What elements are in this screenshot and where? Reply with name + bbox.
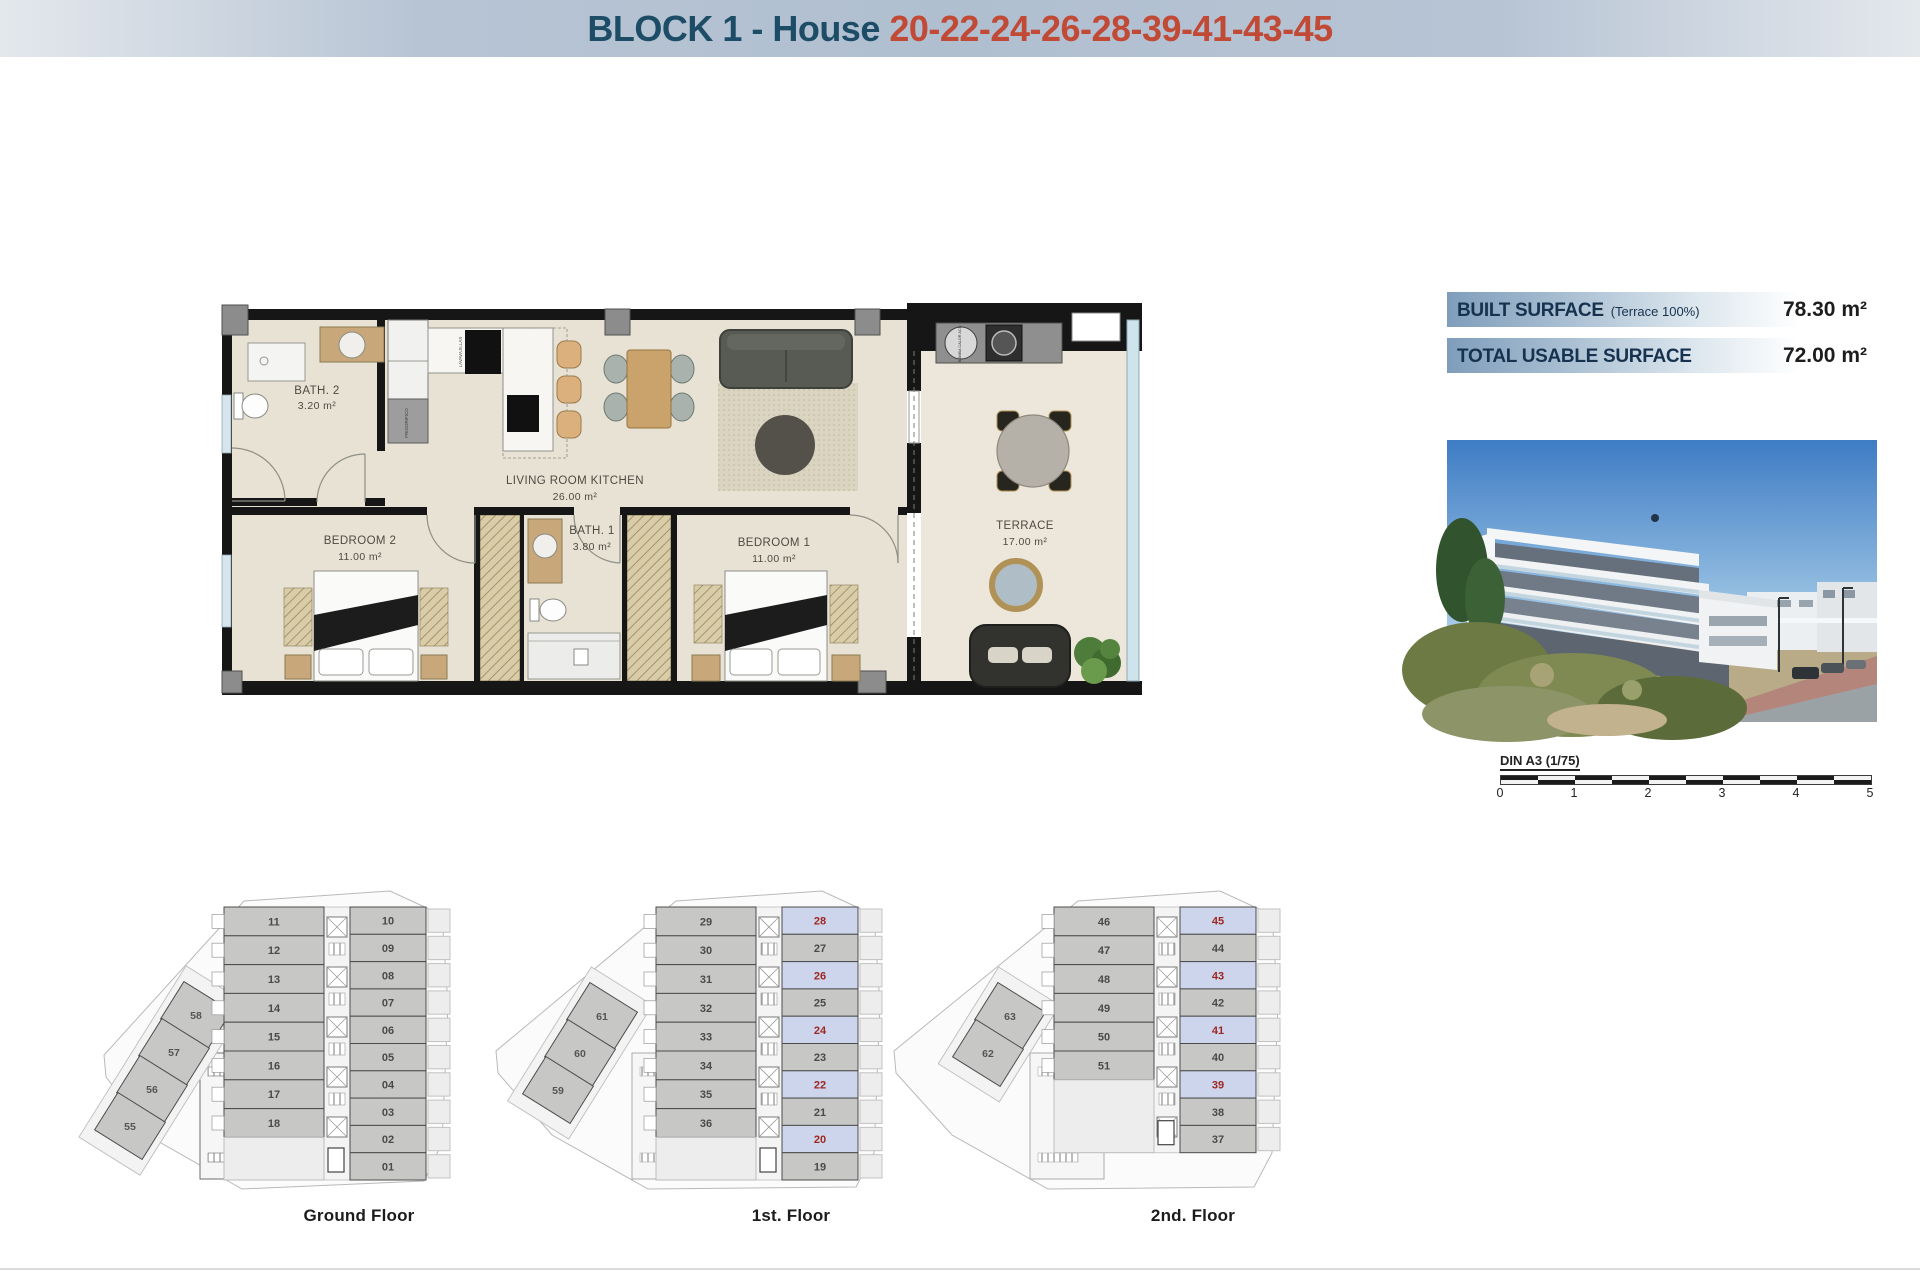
room-area-bath2: 3.20 m² [298,400,336,412]
unit-number: 35 [700,1089,712,1101]
stair-flight [761,993,777,1005]
balcony [428,991,450,1014]
unit-number: 46 [1098,916,1110,928]
entrance-lift [328,1148,344,1172]
unit-number: 62 [982,1048,994,1060]
apartment-floor-plan: FRIGORIFICO LAVAVAJILLAS [222,303,1142,703]
unit-entry [644,1001,656,1015]
stair-flight [329,1093,345,1105]
scale-bar-graphic [1500,775,1872,785]
unit-entry [212,1030,224,1044]
ground-floor-label: Ground Floor [304,1206,415,1226]
unit-number: 24 [814,1025,827,1037]
bar-stools [557,341,581,438]
unit-number: 22 [814,1079,826,1091]
unit-number: 23 [814,1052,826,1064]
unit-number: 15 [268,1032,280,1044]
scale-segment [1612,780,1649,784]
stair-flight [761,1043,777,1055]
balcony [428,1155,450,1178]
terrace-dining [997,411,1071,491]
unit-entry [644,1058,656,1072]
unit-number: 04 [382,1079,395,1091]
room-label-bath2: BATH. 2 [294,385,339,397]
title-house-numbers: 20-22-24-26-28-39-41-43-45 [889,8,1332,49]
title-bar: BLOCK 1 - House 20-22-24-26-28-39-41-43-… [0,0,1920,57]
unit-entry [1042,1058,1054,1072]
dishwasher-label: LAVAVAJILLAS [458,337,463,368]
terrace-round-rug [992,561,1040,609]
unit-number: 45 [1212,916,1224,928]
balcony [428,1127,450,1150]
balcony [1258,909,1280,932]
unit-number: 14 [268,1003,281,1015]
balcony [1258,1127,1280,1150]
unit-entry [212,914,224,928]
second-floor-keyplan: 6362464748495051454443424140393837 [848,885,1298,1205]
unit-entry [212,1087,224,1101]
scale-bar-title: DIN A3 (1/75) [1500,753,1580,771]
unit-entry [212,1058,224,1072]
scale-segment [1834,780,1871,784]
unit-number: 50 [1098,1032,1110,1044]
lobby [1054,1080,1154,1153]
unit-number: 20 [814,1134,826,1146]
unit-number: 34 [700,1060,713,1072]
built-surface-value: 78.30 m² [1783,298,1867,322]
unit-number: 60 [574,1048,586,1060]
stair-flight [1159,993,1175,1005]
unit-number: 12 [268,945,280,957]
unit-number: 26 [814,970,826,982]
built-surface-bar: BUILT SURFACE (Terrace 100%) 78.30 m² [1447,292,1877,327]
room-label-bedroom1: BEDROOM 1 [738,537,811,549]
unit-entry [1042,943,1054,957]
balcony [428,1073,450,1096]
unit-number: 16 [268,1060,280,1072]
unit-number: 43 [1212,970,1224,982]
unit-entry [1042,1001,1054,1015]
terrace-glass-railing [1127,320,1139,681]
entrance-lift [760,1148,776,1172]
scale-bar-ticks: 012345 [1500,786,1872,802]
unit-entry [644,1087,656,1101]
unit-number: 03 [382,1107,394,1119]
stair-flight [329,943,345,955]
balcony [1258,991,1280,1014]
usable-surface-label: TOTAL USABLE SURFACE [1457,346,1692,368]
unit-number: 58 [190,1010,202,1022]
brochure-page: BLOCK 1 - House 20-22-24-26-28-39-41-43-… [0,0,1920,1280]
room-label-living: LIVING ROOM KITCHEN [506,475,644,487]
stair-flight [329,1043,345,1055]
balcony [1258,1046,1280,1069]
unit-entry [1042,914,1054,928]
terrace-loveseat [970,625,1070,687]
core-detail [1038,1153,1078,1162]
unit-number: 05 [382,1052,394,1064]
ground-floor-keyplan: 5857565511121314151617181009080706050403… [92,885,542,1205]
unit-number: 29 [700,916,712,928]
unit-number: 17 [268,1089,280,1101]
scale-bar: DIN A3 (1/75) 012345 [1500,752,1872,802]
room-label-bedroom2: BEDROOM 2 [324,535,397,547]
scale-segment [1723,776,1760,780]
scale-tick: 2 [1645,786,1652,800]
unit-number: 13 [268,974,280,986]
unit-entry [644,943,656,957]
unit-entry [1042,972,1054,986]
usable-surface-bar: TOTAL USABLE SURFACE 72.00 m² [1447,338,1877,373]
scale-tick: 1 [1571,786,1578,800]
scale-segment [1686,780,1723,784]
scale-segment [1575,776,1612,780]
heat-pump-label: BOMBA CALOR ACS [958,325,962,362]
scale-tick: 0 [1497,786,1504,800]
unit-number: 10 [382,916,394,928]
scale-tick: 4 [1793,786,1800,800]
balcony [1258,1073,1280,1096]
balcony [1258,936,1280,959]
room-label-bath1: BATH. 1 [569,525,614,537]
sky-object [1651,514,1659,522]
unit-number: 61 [596,1011,608,1023]
unit-number: 38 [1212,1107,1224,1119]
bedroom1-bed [692,571,860,681]
stair-flight [1159,1093,1175,1105]
building-photo [1447,440,1877,722]
unit-number: 51 [1098,1060,1110,1072]
balcony [1258,1018,1280,1041]
unit-number: 41 [1212,1025,1224,1037]
lobby [224,1137,324,1180]
usable-surface-value: 72.00 m² [1783,344,1867,368]
living-furniture [718,330,858,491]
room-area-bath1: 3.80 m² [573,541,611,553]
scale-segment [1797,776,1834,780]
balcony [428,1018,450,1041]
room-area-bedroom2: 11.00 m² [338,551,382,563]
balcony [428,936,450,959]
unit-number: 32 [700,1003,712,1015]
unit-number: 36 [700,1118,712,1130]
unit-entry [644,1030,656,1044]
unit-number: 01 [382,1161,394,1173]
unit-number: 59 [552,1085,564,1097]
built-surface-label: BUILT SURFACE [1457,300,1604,322]
unit-number: 40 [1212,1052,1224,1064]
terrace-window [1072,313,1120,341]
unit-number: 48 [1098,974,1110,986]
balcony [428,1046,450,1069]
second-floor-label: 2nd. Floor [1151,1206,1235,1226]
lobby [656,1137,756,1180]
scale-tick: 3 [1719,786,1726,800]
unit-number: 56 [146,1084,158,1096]
unit-number: 57 [168,1047,180,1059]
unit-number: 49 [1098,1003,1110,1015]
unit-number: 33 [700,1032,712,1044]
unit-number: 19 [814,1161,826,1173]
scale-segment [1538,780,1575,784]
room-area-living: 26.00 m² [553,491,598,503]
unit-number: 18 [268,1118,280,1130]
unit-number: 37 [1212,1134,1224,1146]
unit-entry [644,1116,656,1130]
footer-line [0,1268,1920,1270]
balcony [1258,1100,1280,1123]
unit-number: 08 [382,970,394,982]
stair-flight [1159,943,1175,955]
unit-number: 06 [382,1025,394,1037]
scale-segment [1760,780,1797,784]
room-area-terrace: 17.00 m² [1003,536,1048,548]
scale-segment [1501,776,1538,780]
unit-entry [212,1001,224,1015]
unit-number: 31 [700,974,712,986]
unit-number: 42 [1212,998,1224,1010]
unit-entry [212,972,224,986]
unit-number: 28 [814,916,826,928]
balcony [428,1100,450,1123]
unit-number: 21 [814,1107,826,1119]
balcony [428,909,450,932]
stair-flight [761,1093,777,1105]
title-block-house: BLOCK 1 - House [587,8,889,49]
unit-number: 55 [124,1121,136,1133]
scale-segment [1649,776,1686,780]
first-floor-label: 1st. Floor [752,1206,831,1226]
unit-number: 25 [814,998,826,1010]
room-area-bedroom1: 11.00 m² [752,553,796,565]
scale-tick: 5 [1867,786,1874,800]
terrace-utility: BOMBA CALOR ACS [936,323,1062,363]
unit-number: 09 [382,943,394,955]
unit-entry [212,1116,224,1130]
balcony [428,964,450,987]
unit-number: 39 [1212,1079,1224,1091]
fridge-label: FRIGORIFICO [404,408,409,438]
unit-number: 30 [700,945,712,957]
balcony [1258,964,1280,987]
unit-number: 63 [1004,1011,1016,1023]
entrance-lift [1158,1121,1174,1145]
unit-entry [644,972,656,986]
stair-flight [1159,1043,1175,1055]
unit-entry [644,914,656,928]
unit-number: 02 [382,1134,394,1146]
built-surface-note: (Terrace 100%) [1611,304,1700,319]
room-label-terrace: TERRACE [996,520,1054,532]
unit-number: 27 [814,943,826,955]
unit-entry [212,943,224,957]
unit-number: 47 [1098,945,1110,957]
unit-number: 07 [382,998,394,1010]
unit-entry [1042,1030,1054,1044]
page-title: BLOCK 1 - House 20-22-24-26-28-39-41-43-… [587,8,1332,50]
unit-number: 11 [268,916,280,928]
stair-flight [329,993,345,1005]
stair-flight [761,943,777,955]
unit-number: 44 [1212,943,1225,955]
